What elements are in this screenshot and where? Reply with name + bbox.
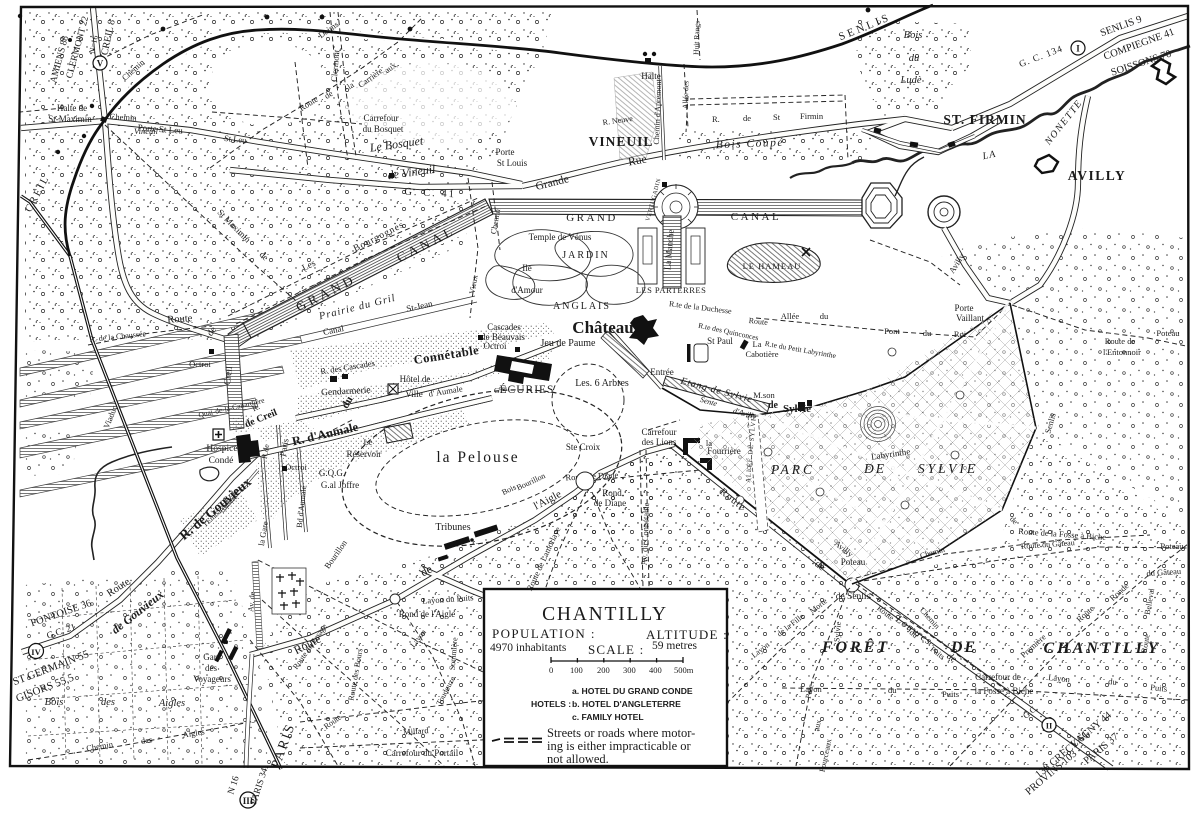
svg-text:4970 inhabitants: 4970 inhabitants xyxy=(490,642,567,654)
svg-text:Huit Rangs: Huit Rangs xyxy=(691,21,701,55)
svg-text:St Paul: St Paul xyxy=(707,336,733,346)
svg-text:Bois: Bois xyxy=(45,697,64,708)
svg-text:Rond: Rond xyxy=(602,488,622,498)
svg-text:ST. FIRMIN: ST. FIRMIN xyxy=(943,112,1026,127)
svg-text:b. HOTEL D'ANGLETERRE: b. HOTEL D'ANGLETERRE xyxy=(572,699,681,709)
svg-text:G.al Joffre: G.al Joffre xyxy=(321,480,359,490)
svg-text:Temple de Vénus: Temple de Vénus xyxy=(529,232,592,242)
svg-text:59 metres: 59 metres xyxy=(652,640,698,652)
svg-text:Ste Croix: Ste Croix xyxy=(566,442,601,452)
svg-text:Octroi: Octroi xyxy=(285,462,307,472)
svg-text:la Pelouse: la Pelouse xyxy=(436,449,519,466)
svg-text:Fourrière: Fourrière xyxy=(707,446,741,456)
svg-text:Bois Coupé: Bois Coupé xyxy=(716,137,785,151)
svg-text:Vaillant: Vaillant xyxy=(956,313,984,323)
svg-text:de Diane: de Diane xyxy=(594,498,626,508)
svg-text:St Louis: St Louis xyxy=(497,158,528,168)
svg-text:Ile: Ile xyxy=(522,263,532,273)
svg-text:Carrefour du Portail: Carrefour du Portail xyxy=(386,748,459,758)
svg-text:GRAND: GRAND xyxy=(566,212,618,224)
svg-text:Av. de: Av. de xyxy=(246,591,257,612)
svg-text:Hospice: Hospice xyxy=(206,444,237,454)
svg-text:Puits: Puits xyxy=(942,689,959,699)
svg-text:du Bosquet: du Bosquet xyxy=(363,124,404,134)
svg-text:Entrée: Entrée xyxy=(650,367,673,377)
svg-text:Streets or roads where motor-: Streets or roads where motor- xyxy=(547,726,695,740)
svg-text:des: des xyxy=(140,734,153,746)
svg-text:Poteau: Poteau xyxy=(1156,328,1180,338)
svg-text:IV: IV xyxy=(31,647,41,657)
svg-text:CHANTILLY: CHANTILLY xyxy=(542,604,668,625)
svg-text:Sylvie: Sylvie xyxy=(832,621,843,643)
svg-text:Rond de l'Aigle: Rond de l'Aigle xyxy=(399,609,456,619)
svg-text:Ville: Ville xyxy=(405,389,422,399)
svg-text:R.: R. xyxy=(712,114,720,124)
svg-text:CANAL: CANAL xyxy=(731,211,781,223)
svg-text:Cascades: Cascades xyxy=(487,322,521,332)
svg-text:a. HOTEL DU GRAND CONDE: a. HOTEL DU GRAND CONDE xyxy=(572,686,693,696)
svg-text:de: de xyxy=(743,113,751,123)
svg-text:ÉCURIES: ÉCURIES xyxy=(500,382,555,396)
svg-text:Firmin: Firmin xyxy=(800,111,824,121)
svg-text:du: du xyxy=(923,328,932,338)
svg-text:Octroi: Octroi xyxy=(484,341,507,351)
svg-text:Porte: Porte xyxy=(496,147,515,157)
svg-text:0: 0 xyxy=(549,665,553,675)
svg-text:FORÊT: FORÊT xyxy=(821,637,890,656)
svg-text:Porte: Porte xyxy=(955,303,974,313)
svg-text:Carrefour: Carrefour xyxy=(364,113,399,123)
svg-text:Poteau: Poteau xyxy=(1160,541,1184,551)
svg-text:Ludè: Ludè xyxy=(900,75,922,86)
svg-text:Route de: Route de xyxy=(1105,336,1136,346)
svg-text:Route: Route xyxy=(167,313,193,326)
svg-text:Jeu de Paume: Jeu de Paume xyxy=(541,338,597,349)
svg-text:VINEUIL: VINEUIL xyxy=(589,134,654,149)
svg-text:Le: Le xyxy=(364,437,373,447)
svg-text:Tribunes: Tribunes xyxy=(435,522,470,533)
svg-text:Chemin: Chemin xyxy=(109,111,137,122)
svg-text:d'Amour: d'Amour xyxy=(511,285,543,295)
svg-text:la Fosse à Biche: la Fosse à Biche xyxy=(975,686,1034,696)
svg-text:LE HAMEAU: LE HAMEAU xyxy=(743,261,802,271)
svg-text:du: du xyxy=(909,53,920,64)
svg-text:not allowed.: not allowed. xyxy=(547,752,609,766)
svg-text:Réservoir: Réservoir xyxy=(347,449,382,459)
svg-text:Château: Château xyxy=(572,318,633,337)
svg-text:de: de xyxy=(768,400,779,411)
svg-text:Bois: Bois xyxy=(904,30,923,41)
svg-text:Aigles: Aigles xyxy=(158,698,185,709)
svg-text:500m: 500m xyxy=(674,665,694,675)
svg-text:Cabotière: Cabotière xyxy=(745,349,778,359)
svg-text:AVILLY: AVILLY xyxy=(1068,168,1127,183)
svg-text:G.Q.G.: G.Q.G. xyxy=(319,468,345,478)
svg-text:Les. 6 Arbres: Les. 6 Arbres xyxy=(575,378,629,389)
svg-text:300: 300 xyxy=(623,665,636,675)
svg-text:c. FAMILY HOTEL: c. FAMILY HOTEL xyxy=(572,712,644,722)
svg-text:Poteau: Poteau xyxy=(841,557,866,567)
svg-text:DE: DE xyxy=(863,461,886,476)
svg-text:Carrefour de: Carrefour de xyxy=(975,672,1021,682)
svg-text:Allée: Allée xyxy=(781,311,800,321)
svg-text:ing is either impracticable o: ing is either impracticable or xyxy=(547,739,692,753)
svg-text:Puits: Puits xyxy=(1150,682,1168,694)
svg-text:des: des xyxy=(101,697,115,708)
svg-text:JARDIN: JARDIN xyxy=(562,250,610,261)
svg-text:M.son: M.son xyxy=(753,390,775,400)
svg-text:400: 400 xyxy=(649,665,662,675)
svg-text:Gare: Gare xyxy=(203,652,221,662)
svg-text:Pont: Pont xyxy=(884,326,900,336)
svg-text:I: I xyxy=(1076,44,1080,54)
svg-text:Octroi: Octroi xyxy=(189,359,211,369)
svg-text:St: St xyxy=(773,112,781,122)
svg-text:Sylvie: Sylvie xyxy=(783,403,811,415)
svg-text:St-Maximin: St-Maximin xyxy=(48,114,92,124)
svg-text:SCALE :: SCALE : xyxy=(588,642,644,657)
svg-text:V: V xyxy=(97,59,104,69)
svg-text:HOTELS :: HOTELS : xyxy=(531,699,571,709)
svg-text:Vineuil: Vineuil xyxy=(134,126,159,136)
svg-text:SYLVIE: SYLVIE xyxy=(918,461,978,476)
svg-text:des: des xyxy=(205,663,217,673)
svg-text:200: 200 xyxy=(597,665,610,675)
svg-text:Allée des: Allée des xyxy=(681,81,691,109)
svg-text:Halte de: Halte de xyxy=(57,103,87,113)
svg-text:Condé: Condé xyxy=(209,456,234,466)
svg-text:l'Entonnoir: l'Entonnoir xyxy=(1103,347,1141,357)
svg-text:Hôtel de: Hôtel de xyxy=(400,374,431,384)
svg-text:II: II xyxy=(1046,721,1053,731)
svg-text:PARC: PARC xyxy=(770,462,815,477)
svg-text:LES PARTERRES: LES PARTERRES xyxy=(636,285,707,295)
svg-text:Roi: Roi xyxy=(954,329,967,339)
svg-text:100: 100 xyxy=(570,665,583,675)
svg-text:du: du xyxy=(888,685,897,695)
svg-text:Millard: Millard xyxy=(403,725,430,737)
svg-text:Carrefour: Carrefour xyxy=(642,427,677,437)
svg-text:de: de xyxy=(818,560,826,570)
svg-text:des Lions: des Lions xyxy=(642,437,677,447)
svg-text:Voyageurs: Voyageurs xyxy=(193,674,231,684)
svg-text:POPULATION :: POPULATION : xyxy=(492,626,596,641)
svg-text:du: du xyxy=(820,311,829,321)
svg-text:ANGLAIS: ANGLAIS xyxy=(553,301,611,312)
